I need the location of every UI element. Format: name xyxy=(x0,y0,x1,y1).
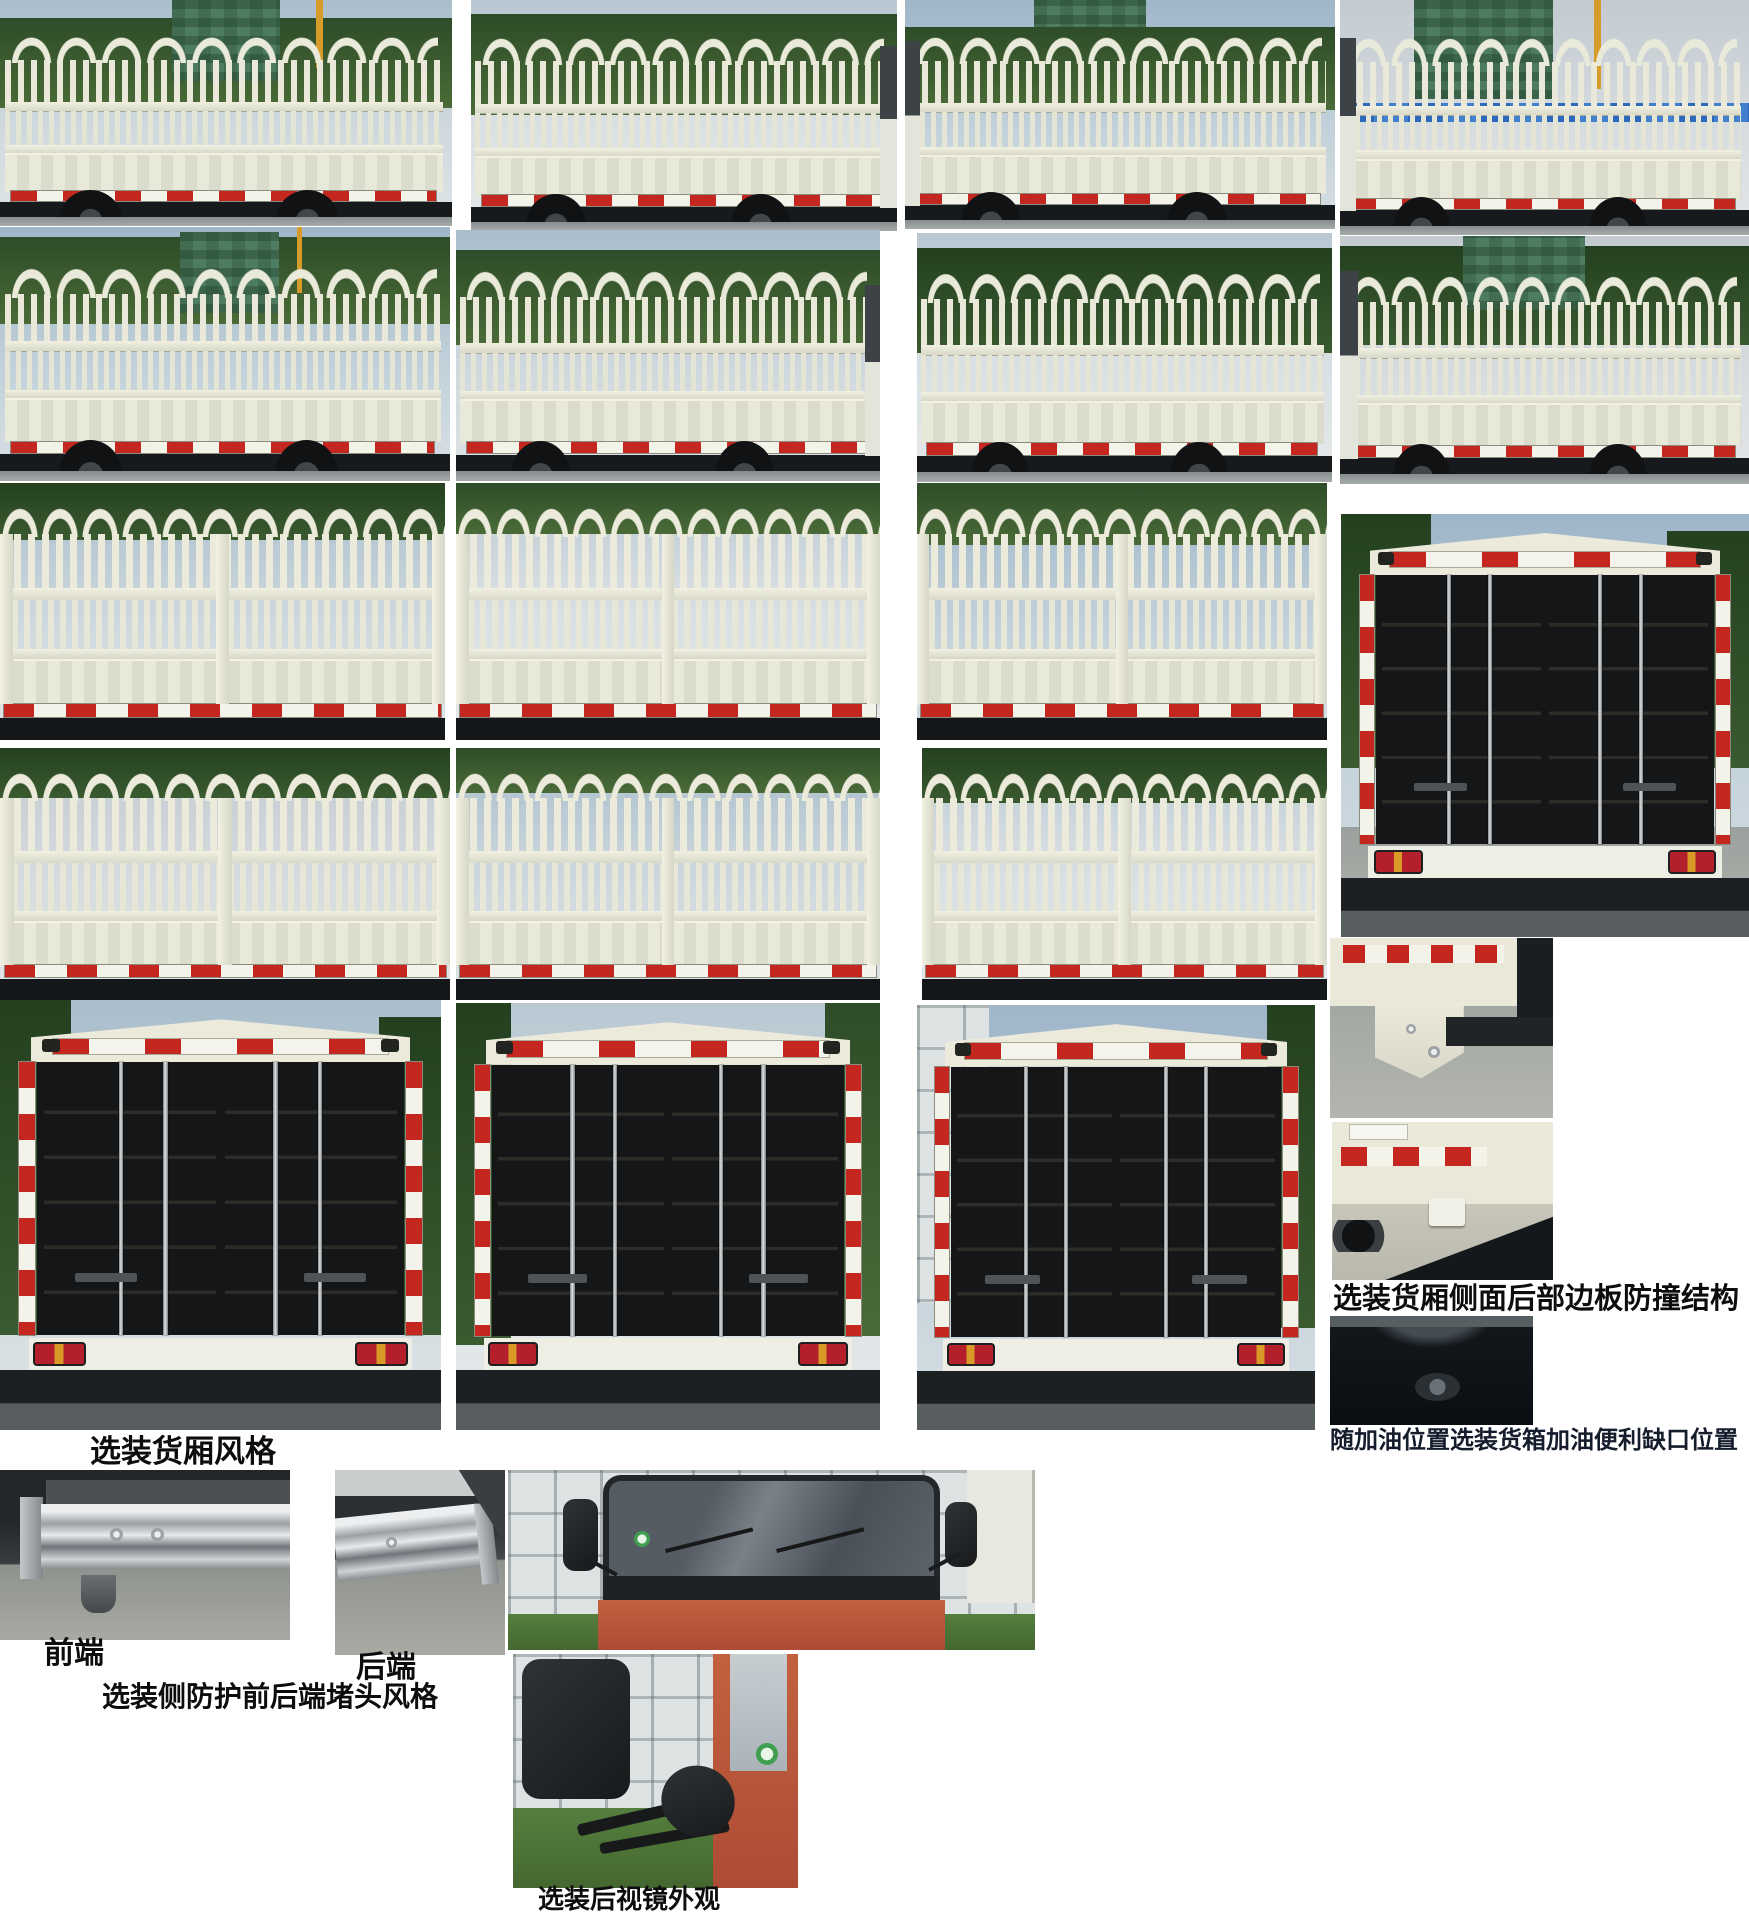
photo-stake-truck-side-2 xyxy=(471,0,897,231)
caption-mirror-appearance: 选装后视镜外观 xyxy=(538,1887,720,1914)
caption-anticollision: 选装货厢侧面后部边板防撞结构 xyxy=(1333,1283,1739,1313)
caption-cargo-box-style: 选装货厢风格 xyxy=(90,1436,276,1469)
photo-fuel-notch-detail xyxy=(1330,1316,1533,1425)
photo-stake-body-rear-quarter-4 xyxy=(0,748,450,1000)
photo-rear-doors-view-1 xyxy=(0,1000,441,1430)
photo-mirror-closeup xyxy=(513,1654,798,1888)
photo-anticollision-detail-bottom xyxy=(1332,1122,1553,1280)
photo-stake-truck-side-3 xyxy=(905,0,1335,229)
photo-side-guard-rear-end xyxy=(335,1470,505,1655)
photo-stake-body-rear-quarter-1 xyxy=(0,483,445,740)
caption-rear-end: 后端 xyxy=(356,1652,416,1684)
photo-anticollision-detail-top xyxy=(1330,938,1553,1118)
caption-side-guard-plug-style: 选装侧防护前后端堵头风格 xyxy=(102,1682,438,1711)
caption-fuel-notch: 随加油位置选装货箱加油便利缺口位置 xyxy=(1330,1428,1738,1453)
photo-rear-doors-view-2 xyxy=(456,1003,880,1430)
photo-side-guard-front-end xyxy=(0,1470,290,1640)
photo-stake-truck-side-4 xyxy=(1340,0,1749,235)
photo-stake-body-rear-quarter-2 xyxy=(456,483,880,740)
photo-stake-truck-side-5 xyxy=(0,227,450,481)
photo-stake-truck-side-1 xyxy=(0,0,452,226)
photo-stake-truck-side-6 xyxy=(456,230,880,481)
photo-stake-truck-side-7 xyxy=(917,233,1332,482)
caption-front-end: 前端 xyxy=(44,1638,104,1670)
photo-truck-rear-view-tall xyxy=(1341,514,1749,937)
photo-cab-front-view xyxy=(508,1470,1035,1650)
photo-rear-doors-view-3 xyxy=(917,1005,1315,1430)
photo-stake-body-rear-quarter-6 xyxy=(922,748,1327,1000)
photo-stake-body-rear-quarter-5 xyxy=(456,748,880,1000)
photo-stake-truck-side-8 xyxy=(1340,236,1749,484)
vehicle-photo-collage: 选装货厢侧面后部边板防撞结构 随加油位置选装货箱加油便利缺口位置 xyxy=(0,0,1749,1923)
photo-stake-body-rear-quarter-3 xyxy=(917,483,1327,740)
